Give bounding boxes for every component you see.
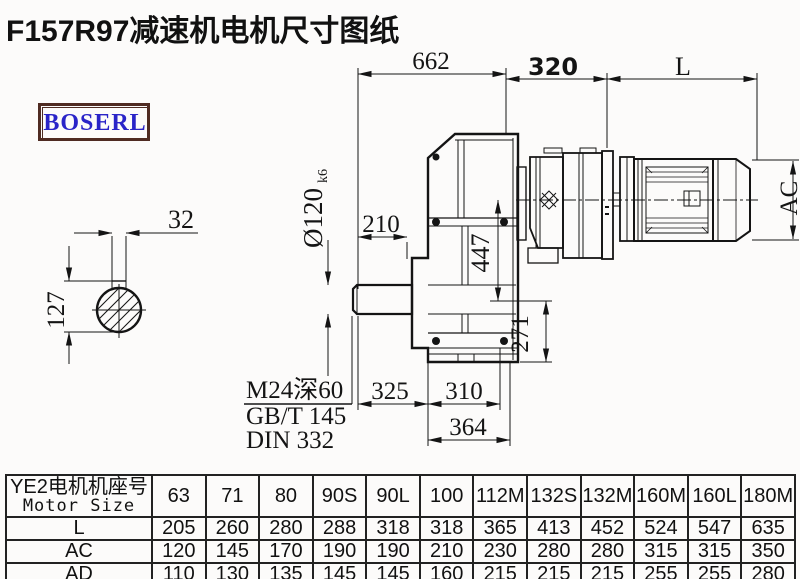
cell: 205 xyxy=(152,517,206,540)
cell: 280 xyxy=(527,540,581,563)
motor-side-view xyxy=(516,148,758,263)
cell: 170 xyxy=(259,540,313,563)
standard-note-1: GB/T 145 xyxy=(246,403,346,430)
col-header: 132M xyxy=(581,475,635,517)
dim-shaft-ext xyxy=(358,237,407,259)
table-row-AD: AD 110 130 135 145 145 160 215 215 215 2… xyxy=(6,563,795,579)
dim-271-label: 271 xyxy=(507,315,534,353)
dim-AC-label: AC xyxy=(776,181,800,216)
dim-motor-length xyxy=(607,73,757,160)
cell: 315 xyxy=(634,540,688,563)
col-header: 90S xyxy=(313,475,367,517)
cell: 318 xyxy=(366,517,420,540)
dim-input-length xyxy=(506,73,607,148)
cell: 547 xyxy=(688,517,742,540)
cell: 190 xyxy=(313,540,367,563)
table-row-AC: AC 120 145 170 190 190 210 230 280 280 3… xyxy=(6,540,795,563)
cell: 130 xyxy=(206,563,260,579)
cell: 255 xyxy=(688,563,742,579)
cell: 215 xyxy=(473,563,527,579)
cell: 145 xyxy=(313,563,367,579)
cell: 145 xyxy=(366,563,420,579)
dim-364-label: 364 xyxy=(449,414,487,441)
dim-L-label: L xyxy=(675,52,691,81)
dim-shaft-dia-tol-label: k6 xyxy=(316,169,331,183)
motor-size-header-en: Motor Size xyxy=(7,498,151,516)
row-label: AD xyxy=(6,563,152,579)
cell: 365 xyxy=(473,517,527,540)
col-header: 90L xyxy=(366,475,420,517)
tap-hole-note: M24深60 xyxy=(246,376,343,404)
cell: 413 xyxy=(527,517,581,540)
col-header: 63 xyxy=(152,475,206,517)
col-header: 160L xyxy=(688,475,742,517)
row-label: AC xyxy=(6,540,152,563)
cell: 315 xyxy=(688,540,742,563)
col-header: 112M xyxy=(473,475,527,517)
dim-325-label: 325 xyxy=(371,378,409,405)
dim-axis-to-input xyxy=(490,200,552,301)
table-header-row: YE2电机机座号 Motor Size 63 71 80 90S 90L 100… xyxy=(6,475,795,517)
cell: 255 xyxy=(634,563,688,579)
dim-662-label: 662 xyxy=(412,48,450,75)
cell: 280 xyxy=(741,563,795,579)
cell: 210 xyxy=(420,540,474,563)
dim-310-label: 310 xyxy=(445,378,483,405)
col-header: 100 xyxy=(420,475,474,517)
dim-shaft-dia-label: Ø120 xyxy=(298,188,328,248)
cell: 452 xyxy=(581,517,635,540)
dim-447-label: 447 xyxy=(466,234,495,273)
col-header: 132S xyxy=(527,475,581,517)
cell: 288 xyxy=(313,517,367,540)
cell: 145 xyxy=(206,540,260,563)
cell: 135 xyxy=(259,563,313,579)
cell: 635 xyxy=(741,517,795,540)
cell: 215 xyxy=(527,563,581,579)
col-header: 71 xyxy=(206,475,260,517)
cell: 280 xyxy=(259,517,313,540)
col-header: 160M xyxy=(634,475,688,517)
cell: 318 xyxy=(420,517,474,540)
standard-note-2: DIN 332 xyxy=(246,427,334,454)
output-shaft xyxy=(353,285,412,314)
terminal-box xyxy=(684,191,700,206)
col-header: 180M xyxy=(741,475,795,517)
dim-key-height xyxy=(64,246,124,364)
drawing-sheet: F157R97减速机电机尺寸图纸 BOSERL xyxy=(0,0,800,579)
cell: 190 xyxy=(366,540,420,563)
row-label: L xyxy=(6,517,152,540)
motor-size-header: YE2电机机座号 Motor Size xyxy=(6,475,152,517)
cell: 350 xyxy=(741,540,795,563)
dim-32-label: 32 xyxy=(168,205,194,234)
cell: 110 xyxy=(152,563,206,579)
cell: 280 xyxy=(581,540,635,563)
cell: 524 xyxy=(634,517,688,540)
dim-127-label: 127 xyxy=(43,291,70,329)
cell: 160 xyxy=(420,563,474,579)
dim-210-label: 210 xyxy=(362,211,400,238)
dim-320-label: 320 xyxy=(528,53,578,81)
motor-size-header-cjk: YE2电机机座号 xyxy=(7,477,151,498)
col-header: 80 xyxy=(259,475,313,517)
cell: 260 xyxy=(206,517,260,540)
technical-drawing: 662 320 L AC 32 127 210 Ø120 k6 447 271 … xyxy=(0,0,800,474)
shaft-end-view xyxy=(72,236,166,338)
cell: 120 xyxy=(152,540,206,563)
cell: 230 xyxy=(473,540,527,563)
motor-size-table: YE2电机机座号 Motor Size 63 71 80 90S 90L 100… xyxy=(5,474,796,579)
cell: 215 xyxy=(581,563,635,579)
table-row-L: L 205 260 280 288 318 318 365 413 452 52… xyxy=(6,517,795,540)
